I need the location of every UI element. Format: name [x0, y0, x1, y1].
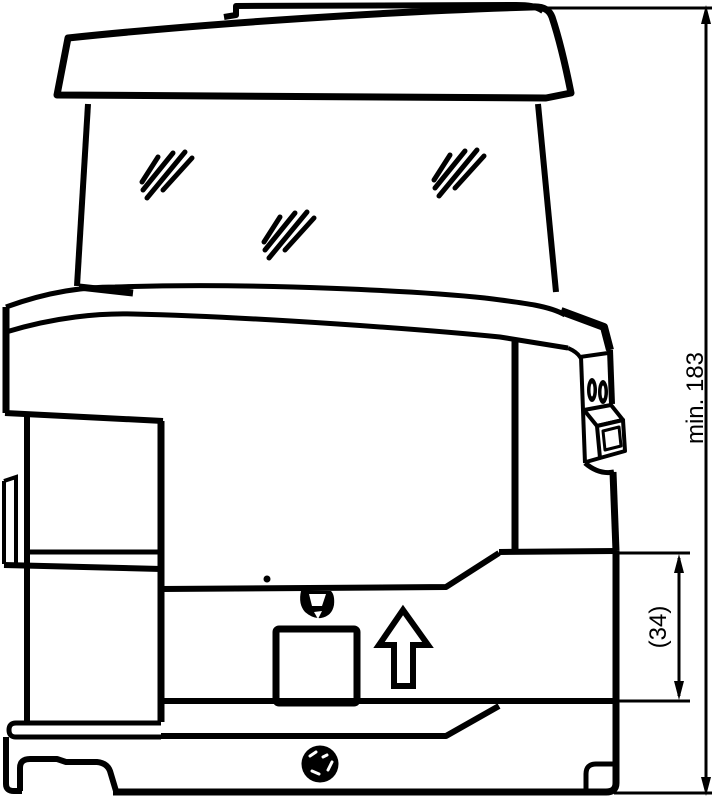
base-right-edge: [592, 551, 616, 792]
machine-diagram: min. 183 (34): [0, 0, 712, 800]
shine-marks-left: [142, 152, 192, 198]
dimension-height-clearance: min. 183: [548, 5, 712, 796]
diagram-canvas: min. 183 (34): [0, 0, 712, 800]
switch-panel: [568, 348, 625, 551]
body-right-edge-upper: [613, 472, 616, 551]
foot-cutout-left: [20, 759, 116, 791]
dimension-label-base: (34): [645, 606, 672, 649]
band-bottom-line: [6, 314, 568, 348]
dimension-label-height: min. 183: [682, 352, 709, 444]
arrowhead-up: [674, 554, 684, 573]
shine-marks-right: [434, 150, 484, 196]
hopper: [77, 104, 556, 292]
mid-band: [6, 286, 610, 350]
arrowhead-down: [674, 681, 684, 700]
left-side-tab: [4, 477, 16, 564]
drip-nozzle: [300, 591, 334, 619]
panel-bottom-curve: [585, 463, 614, 473]
base-step-top: [499, 551, 616, 552]
lower-panel-top-edge: [4, 565, 161, 569]
switch-screws: [587, 378, 608, 404]
lid-outline: [57, 7, 571, 98]
cup-pedestal: [276, 629, 357, 703]
power-switch: [584, 405, 625, 462]
hopper-right-edge: [538, 104, 556, 292]
lid: [57, 5, 571, 98]
foot-notch-right: [586, 764, 613, 790]
dimension-base-height: (34): [618, 553, 690, 701]
pinhole-dot: [264, 576, 271, 583]
band-right-corner: [561, 311, 610, 350]
panel-right-edge: [610, 350, 612, 404]
base-screw: [302, 746, 339, 783]
panel-top-edge: [568, 348, 608, 357]
body-bottom-edge: [161, 553, 499, 589]
shine-marks-middle: [264, 212, 314, 258]
base-ledge-bar: [9, 723, 161, 737]
hopper-left-edge: [77, 104, 88, 286]
up-arrow-icon: [379, 610, 428, 686]
baseplate-top: [161, 706, 499, 736]
